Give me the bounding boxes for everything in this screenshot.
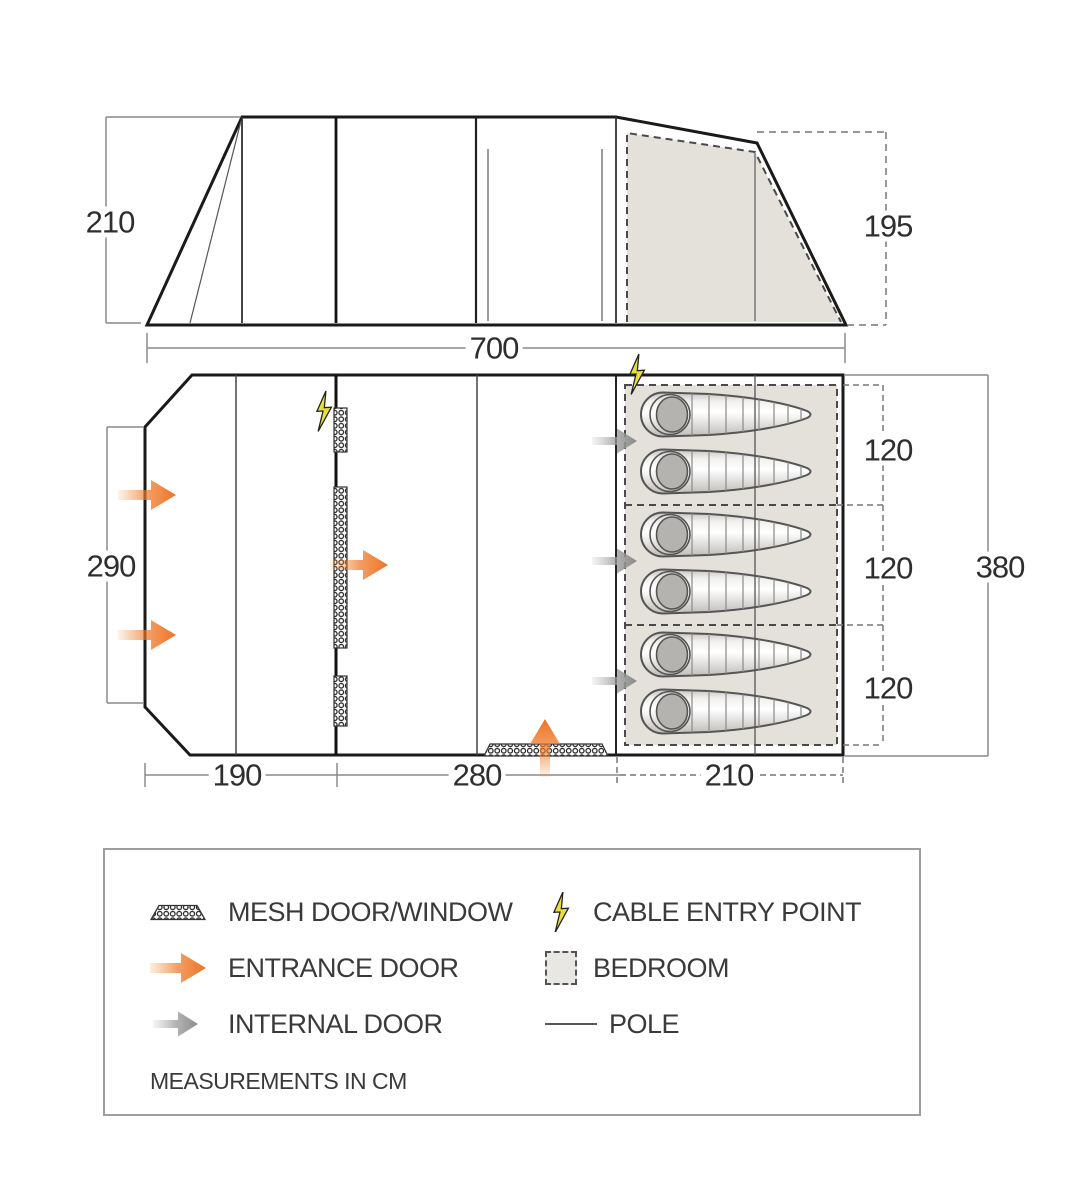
legend-item-entrance: ENTRANCE DOOR — [150, 948, 459, 988]
legend-label-pole: POLE — [609, 1009, 679, 1040]
dim-bedroom-section-2: 120 — [860, 553, 917, 584]
legend-label-internal: INTERNAL DOOR — [228, 1009, 443, 1040]
dim-bedroom-section-1: 120 — [860, 435, 917, 466]
legend-item-mesh: MESH DOOR/WINDOW — [150, 892, 512, 932]
mesh-swatch-icon — [150, 904, 206, 921]
elevation-bedroom-fill — [627, 133, 841, 322]
dim-bottom-width-3: 210 — [701, 760, 758, 791]
legend-label-mesh: MESH DOOR/WINDOW — [228, 897, 512, 928]
measurements-note: MEASUREMENTS IN CM — [150, 1068, 407, 1095]
legend-item-bedroom: BEDROOM — [543, 948, 729, 988]
entrance-arrow-icon — [150, 950, 206, 986]
legend: MESH DOOR/WINDOW CABLE ENTRY POINT ENTRA… — [103, 848, 921, 1116]
pole-line-icon — [543, 1023, 599, 1025]
diagram-drawing — [0, 0, 1079, 830]
dim-elevation-height-right: 195 — [860, 211, 917, 242]
dim-front-depth: 290 — [83, 551, 140, 582]
dim-bedroom-section-3: 120 — [860, 673, 917, 704]
lightning-icon — [543, 892, 579, 932]
legend-label-cable: CABLE ENTRY POINT — [593, 897, 861, 928]
legend-item-pole: POLE — [543, 1004, 679, 1044]
legend-item-cable: CABLE ENTRY POINT — [543, 892, 861, 932]
internal-arrow-icon — [150, 1009, 206, 1039]
floor-plan — [118, 354, 843, 777]
dim-width-total: 700 — [466, 333, 523, 364]
mesh-window-bottom — [334, 676, 347, 726]
legend-label-bedroom: BEDROOM — [593, 953, 729, 984]
elevation-view — [147, 117, 846, 325]
legend-label-entrance: ENTRANCE DOOR — [228, 953, 459, 984]
tent-floorplan-diagram: 210 195 700 290 380 120 120 120 190 280 … — [0, 0, 1079, 1200]
mesh-window-top — [334, 408, 347, 452]
bedroom-swatch-icon — [543, 951, 579, 985]
dim-bottom-width-2: 280 — [449, 760, 506, 791]
elevation-inner-slant-line — [190, 121, 241, 323]
legend-item-internal: INTERNAL DOOR — [150, 1004, 443, 1044]
dim-elevation-height-left: 210 — [82, 207, 139, 238]
dim-side-depth-total: 380 — [972, 552, 1029, 583]
dim-bottom-width-1: 190 — [209, 760, 266, 791]
